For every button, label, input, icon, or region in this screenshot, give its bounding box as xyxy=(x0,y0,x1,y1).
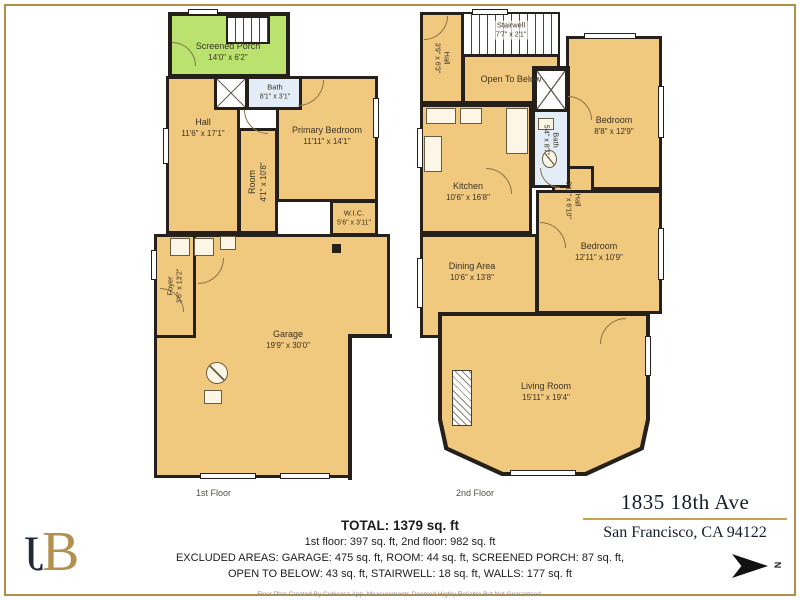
label-bedroom-mid: Bedroom 12'11" x 10'9" xyxy=(575,241,623,263)
porch-stairs xyxy=(226,16,270,44)
floor-plan-sheet: Screened Porch 14'0" x 6'2" Bath 8'1" x … xyxy=(0,0,800,600)
window xyxy=(658,228,664,280)
second-floor-caption: 2nd Floor xyxy=(456,488,494,498)
window xyxy=(417,128,423,168)
window xyxy=(658,86,664,138)
label-bath-1f: Bath 8'1" x 3'1" xyxy=(260,83,291,102)
disclaimer: Floor Plan Created By Cubicasa App. Meas… xyxy=(120,591,680,598)
label-kitchen: Kitchen 10'6" x 16'8" xyxy=(446,181,490,203)
logo-letter-j: J xyxy=(24,524,43,582)
kitchen-stove xyxy=(460,108,482,124)
kitchen-oven-stack xyxy=(424,136,442,172)
address-divider xyxy=(583,518,787,520)
first-floor-caption: 1st Floor xyxy=(196,488,231,498)
label-bath-2f: Bath 5'4" x 8'7" xyxy=(542,125,561,156)
window xyxy=(472,9,508,15)
label-hall-2f-top: Hall 3'9" x 6'3" xyxy=(433,43,452,74)
window xyxy=(188,9,218,15)
excluded-areas-line1: EXCLUDED AREAS: GARAGE: 475 sq. ft, ROOM… xyxy=(120,551,680,567)
label-foyer: Foyer 3'6" x 13'2" xyxy=(166,269,185,304)
address-line2: San Francisco, CA 94122 xyxy=(583,524,787,542)
label-primary-bedroom: Primary Bedroom 11'11" x 14'1" xyxy=(292,125,362,147)
logo-letter-b: B xyxy=(42,520,79,584)
window xyxy=(584,33,636,39)
label-garage: Garage 19'9" x 30'0" xyxy=(266,329,310,351)
window xyxy=(163,128,169,164)
property-address: 1835 18th Ave San Francisco, CA 94122 xyxy=(583,490,787,542)
water-heater xyxy=(206,362,228,384)
label-living-room: Living Room 15'11" x 19'4" xyxy=(521,381,571,403)
label-dining-area: Dining Area 10'6" x 13'8" xyxy=(449,261,496,283)
label-bedroom-top: Bedroom 8'8" x 12'9" xyxy=(594,115,633,137)
garage-notch xyxy=(348,334,392,480)
window xyxy=(151,250,157,280)
fireplace xyxy=(452,370,472,426)
north-arrow-icon xyxy=(732,554,768,578)
brand-monogram-logo: J B xyxy=(16,520,96,590)
kitchen-counter xyxy=(426,108,456,124)
window xyxy=(373,98,379,138)
address-line1: 1835 18th Ave xyxy=(583,490,787,515)
label-room-1f: Room 4'1" x 10'8" xyxy=(247,162,269,201)
label-open-to-below: Open To Below xyxy=(481,74,542,86)
shower-1f xyxy=(214,76,248,110)
garage-fixture xyxy=(204,390,222,404)
label-hall-1f: Hall 11'6" x 17'1" xyxy=(181,117,224,139)
window xyxy=(645,336,651,376)
appliance-dryer xyxy=(194,238,214,256)
appliance-washer xyxy=(170,238,190,256)
label-wic: W.I.C. 5'6" x 3'11" xyxy=(337,209,371,228)
bay-window xyxy=(510,470,576,476)
excluded-areas-line2: OPEN TO BELOW: 43 sq. ft, STAIRWELL: 18 … xyxy=(120,567,680,583)
label-hall-2f-mid: Hall 3'11" x 6'10" xyxy=(564,181,583,219)
post xyxy=(332,244,341,253)
window xyxy=(280,473,330,479)
appliance-sink xyxy=(220,236,236,250)
label-screened-porch: Screened Porch 14'0" x 6'2" xyxy=(196,41,261,63)
north-arrow: N xyxy=(730,550,790,584)
kitchen-fridge xyxy=(506,108,528,154)
window xyxy=(200,473,256,479)
north-label: N xyxy=(772,562,782,569)
window xyxy=(417,258,423,308)
label-stairwell: Stairwell 7'7" x 2'1" xyxy=(494,21,529,40)
